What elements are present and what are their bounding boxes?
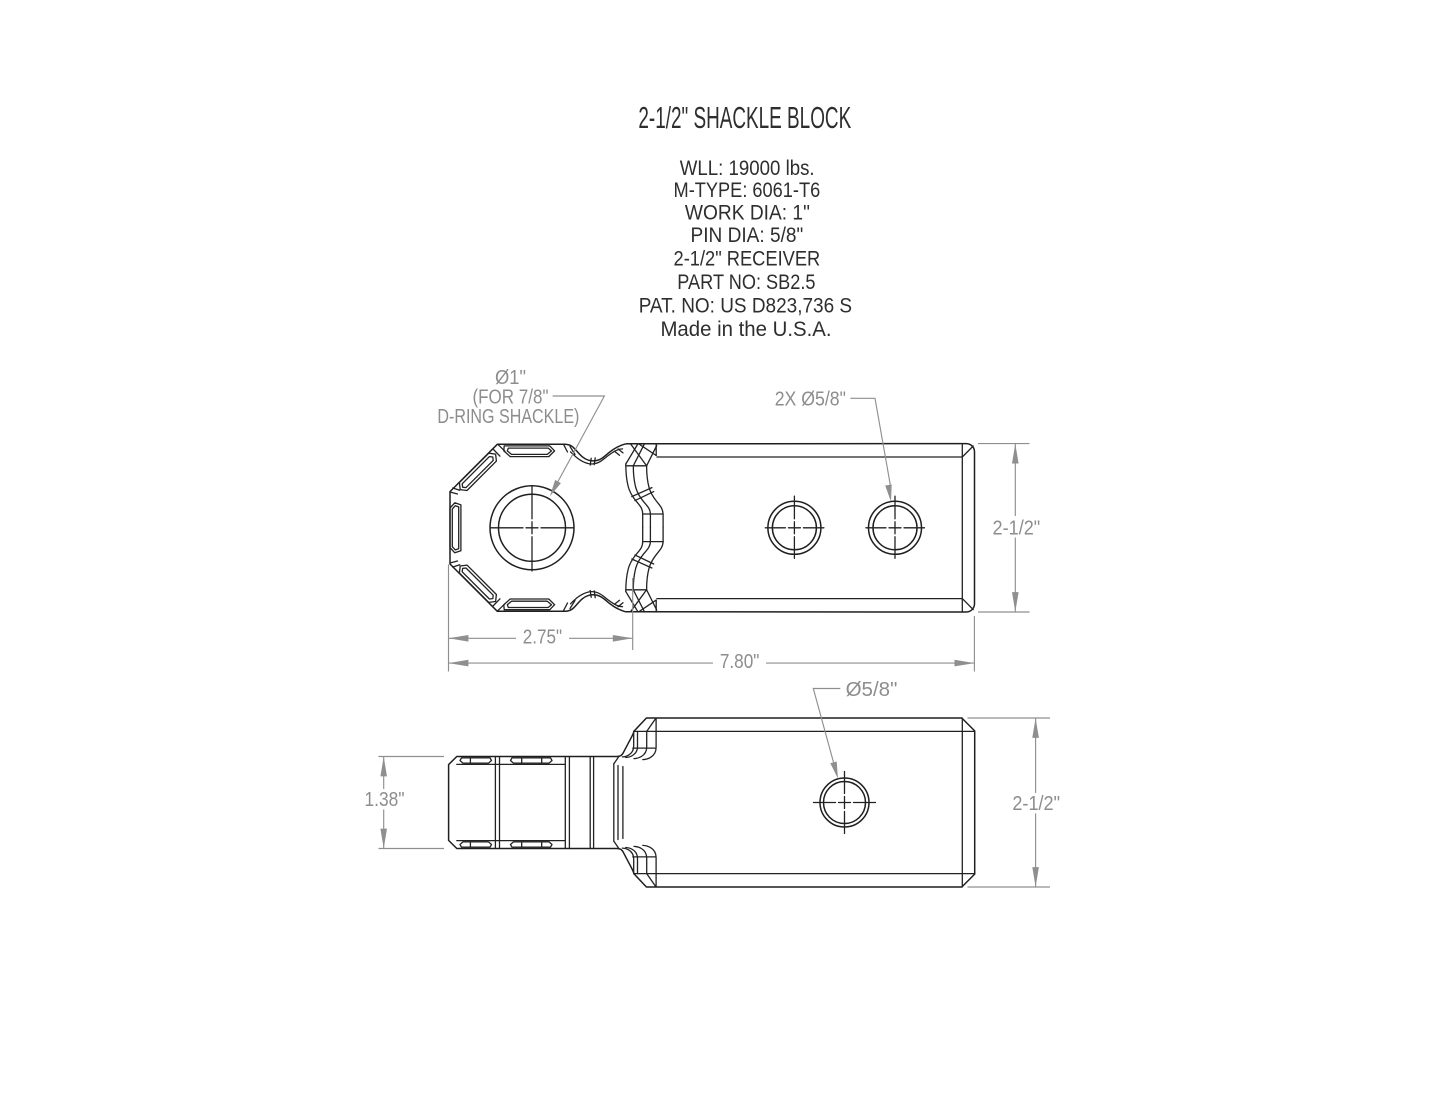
svg-text:1.38": 1.38" bbox=[365, 788, 405, 811]
svg-text:2-1/2": 2-1/2" bbox=[1012, 792, 1060, 815]
svg-text:D-RING SHACKLE): D-RING SHACKLE) bbox=[437, 405, 579, 428]
svg-text:WORK DIA: 1": WORK DIA: 1" bbox=[685, 202, 810, 225]
svg-text:2X Ø5/8": 2X Ø5/8" bbox=[775, 388, 846, 411]
svg-text:WLL: 19000 lbs.: WLL: 19000 lbs. bbox=[680, 157, 815, 180]
svg-text:PAT. NO: US D823,736 S: PAT. NO: US D823,736 S bbox=[639, 294, 852, 317]
svg-text:2.75": 2.75" bbox=[523, 625, 562, 648]
svg-text:M-TYPE: 6061-T6: M-TYPE: 6061-T6 bbox=[674, 179, 821, 202]
svg-text:PIN DIA: 5/8": PIN DIA: 5/8" bbox=[691, 224, 804, 247]
svg-text:2-1/2" SHACKLE BLOCK: 2-1/2" SHACKLE BLOCK bbox=[638, 100, 851, 135]
svg-text:Ø5/8": Ø5/8" bbox=[846, 678, 898, 701]
svg-text:PART NO: SB2.5: PART NO: SB2.5 bbox=[677, 271, 815, 294]
svg-text:7.80": 7.80" bbox=[720, 650, 760, 673]
svg-text:2-1/2" RECEIVER: 2-1/2" RECEIVER bbox=[674, 247, 821, 270]
svg-text:Made in the U.S.A.: Made in the U.S.A. bbox=[660, 318, 831, 341]
svg-text:2-1/2": 2-1/2" bbox=[993, 517, 1041, 540]
